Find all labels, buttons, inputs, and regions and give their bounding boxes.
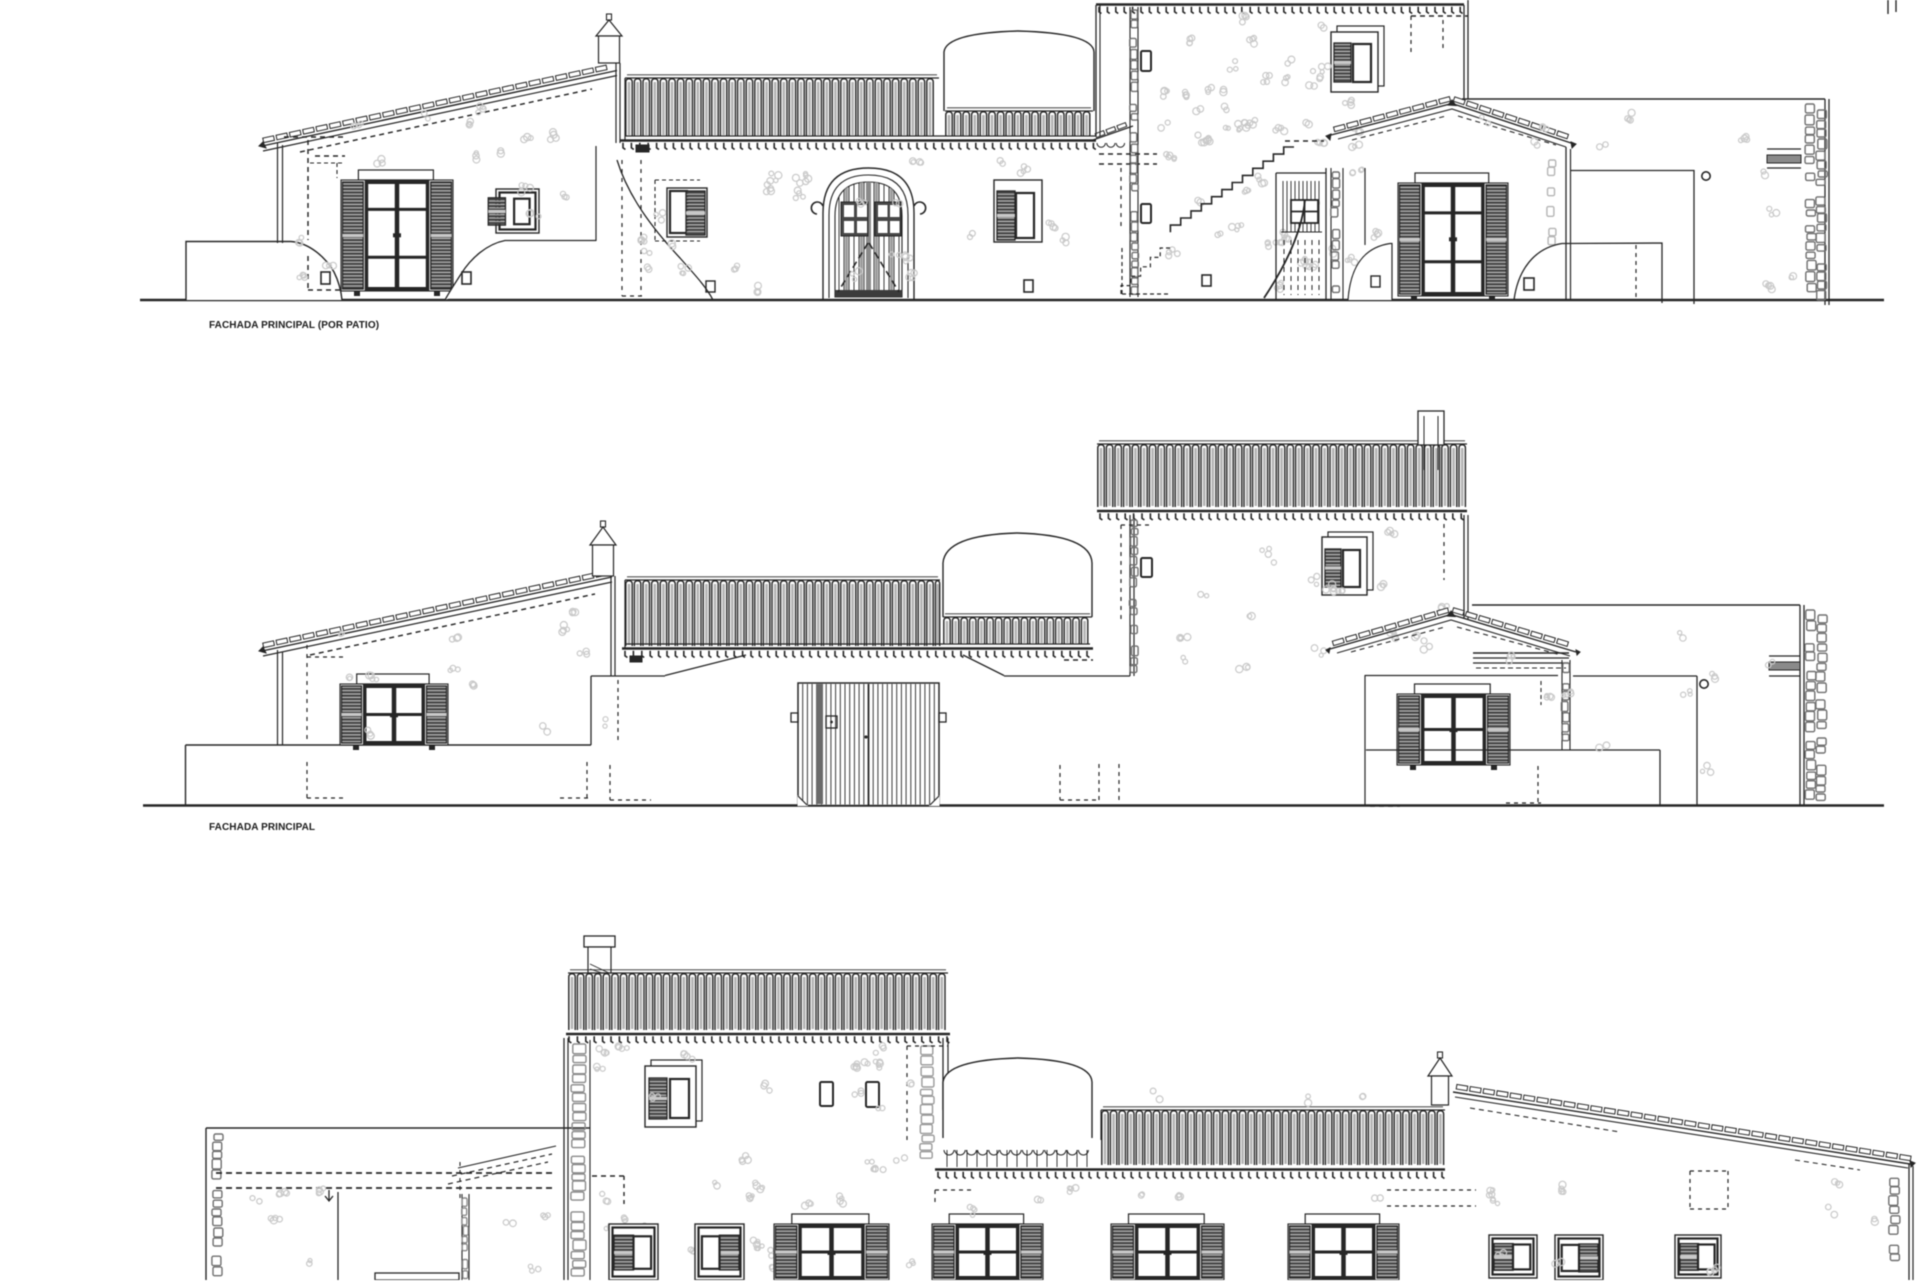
svg-text:FACHADA PRINCIPAL (POR PATIO): FACHADA PRINCIPAL (POR PATIO) xyxy=(209,320,379,331)
svg-text:FACHADA PRINCIPAL: FACHADA PRINCIPAL xyxy=(209,822,315,833)
